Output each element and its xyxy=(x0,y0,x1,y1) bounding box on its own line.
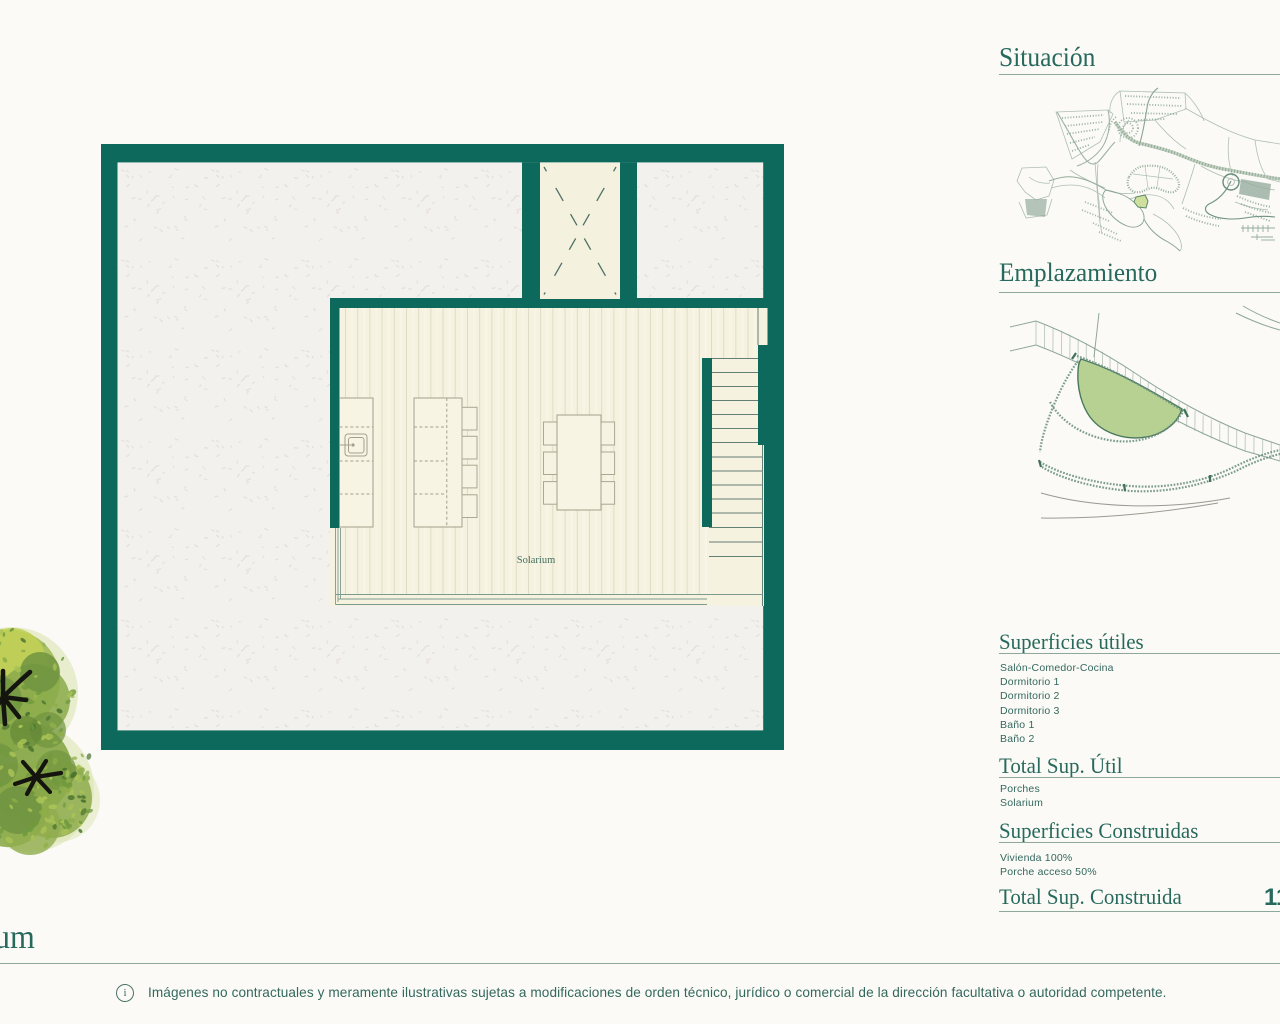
svg-text:Solarium: Solarium xyxy=(517,555,556,566)
